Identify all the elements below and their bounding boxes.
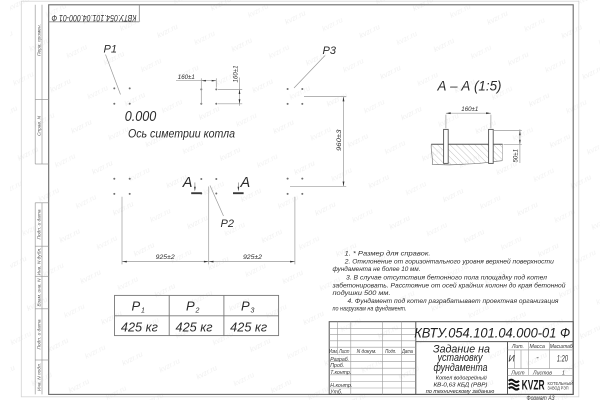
svg-text:425 кг: 425 кг <box>176 321 213 335</box>
svg-text:А: А <box>240 175 251 191</box>
svg-text:P3: P3 <box>323 45 337 57</box>
svg-text:Н.контр.: Н.контр. <box>330 383 352 389</box>
svg-text:Разраб.: Разраб. <box>330 357 349 363</box>
svg-text:3: 3 <box>251 308 255 315</box>
svg-text:Дата: Дата <box>401 349 413 355</box>
svg-text:925±2: 925±2 <box>156 254 175 261</box>
svg-text:Подп. и дата: Подп. и дата <box>36 319 42 349</box>
svg-text:160±1: 160±1 <box>178 74 195 81</box>
svg-text:по нагрузкам на фундамент.: по нагрузкам на фундамент. <box>333 305 407 313</box>
svg-text:2. Отклонение от горизонтально: 2. Отклонение от горизонтального уровня … <box>344 258 554 266</box>
svg-text:P2: P2 <box>221 218 234 230</box>
svg-text:по техническому заданию: по техническому заданию <box>426 389 495 395</box>
svg-text:1. * Размер для справок.: 1. * Размер для справок. <box>345 250 431 258</box>
svg-text:-: - <box>536 353 539 362</box>
svg-text:3. В случае отсутствия бетонно: 3. В случае отсутствия бетонного пола пл… <box>346 274 547 282</box>
svg-text:Подп. и дата: Подп. и дата <box>36 209 42 239</box>
svg-text:Перв. примен.: Перв. примен. <box>36 24 42 56</box>
svg-text:160±1: 160±1 <box>232 65 239 82</box>
svg-text:425 кг: 425 кг <box>230 321 267 335</box>
svg-text:Справ. N: Справ. N <box>36 115 42 136</box>
svg-text:Масса: Масса <box>530 344 545 350</box>
svg-text:А: А <box>182 175 193 191</box>
svg-text:КВ-0,63 КБД (РВР): КВ-0,63 КБД (РВР) <box>434 383 488 389</box>
svg-text:А – А (1:5): А – А (1:5) <box>437 78 502 94</box>
svg-text:425 кг: 425 кг <box>121 321 158 335</box>
svg-text:Инв. N подл.: Инв. N подл. <box>36 363 42 391</box>
svg-text:КВТУ.054.101.04.000-01 Ф: КВТУ.054.101.04.000-01 Ф <box>414 326 570 341</box>
svg-text:1: 1 <box>562 371 565 377</box>
svg-text:960±3: 960±3 <box>336 129 343 151</box>
svg-text:P: P <box>132 299 141 314</box>
svg-text:925±2: 925±2 <box>243 254 262 261</box>
svg-text:И: И <box>508 353 515 363</box>
svg-text:Инв. N дубл.: Инв. N дубл. <box>36 248 42 276</box>
svg-text:Утб.: Утб. <box>330 389 342 395</box>
svg-text:50±1: 50±1 <box>512 149 519 163</box>
svg-text:KVZR: KVZR <box>522 376 545 392</box>
svg-text:Масштаб: Масштаб <box>550 344 574 350</box>
svg-text:160±1: 160±1 <box>461 106 478 113</box>
svg-text:Формат А3: Формат А3 <box>527 395 555 400</box>
svg-text:КВТУ.054.101.04.000-01 Ф: КВТУ.054.101.04.000-01 Ф <box>51 12 136 23</box>
svg-text:P1: P1 <box>104 44 117 56</box>
svg-text:P: P <box>186 299 195 314</box>
svg-text:4. Фундамент под котел разраба: 4. Фундамент под котел разрабатывает про… <box>348 297 559 305</box>
svg-text:фундамента не более 10 мм.: фундамента не более 10 мм. <box>333 265 421 273</box>
svg-text:Лист: Лист <box>338 349 350 355</box>
svg-text:фундамента: фундамента <box>434 362 488 374</box>
svg-text:P: P <box>241 299 250 314</box>
svg-text:Проб.: Проб. <box>330 363 344 369</box>
svg-text:1:20: 1:20 <box>557 353 568 363</box>
svg-text:1: 1 <box>141 308 145 315</box>
svg-text:Т.контр.: Т.контр. <box>330 370 351 376</box>
svg-text:0.000: 0.000 <box>125 109 157 125</box>
svg-text:ЗАВОД РЭП: ЗАВОД РЭП <box>548 386 569 392</box>
svg-text:забетонировать. Расстояние от: забетонировать. Расстояние от осей крайн… <box>331 281 565 289</box>
svg-text:Котел водогрейный: Котел водогрейный <box>436 375 487 382</box>
svg-text:N докум.: N докум. <box>357 349 377 355</box>
svg-text:2: 2 <box>195 308 200 315</box>
svg-text:Взам. инв. N: Взам. инв. N <box>36 278 42 306</box>
svg-text:Лит.: Лит. <box>511 344 524 350</box>
svg-text:Подп.: Подп. <box>385 349 396 355</box>
svg-text:Ось симетрии котла: Ось симетрии котла <box>128 128 235 140</box>
svg-text:Изм.: Изм. <box>329 349 338 355</box>
svg-text:подушки 500 мм.: подушки 500 мм. <box>333 289 391 297</box>
